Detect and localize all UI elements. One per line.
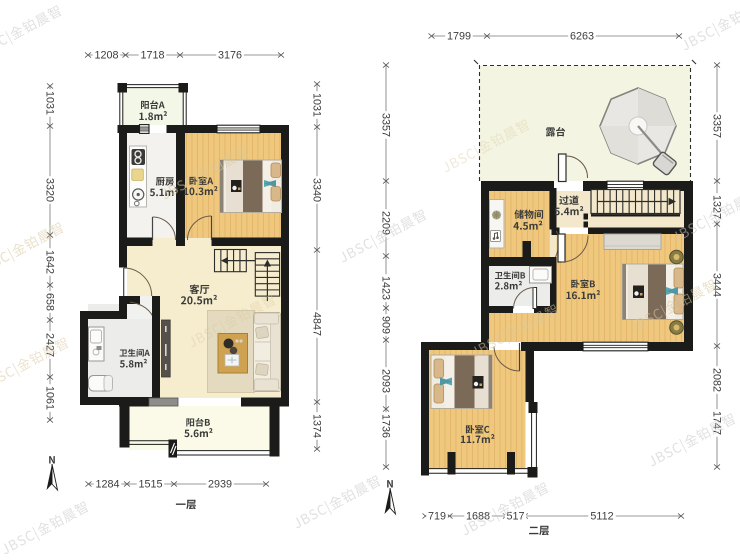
svg-text:3320: 3320	[43, 178, 55, 202]
svg-text:5112: 5112	[590, 511, 613, 523]
svg-text:1515: 1515	[138, 479, 162, 491]
svg-text:1799: 1799	[447, 31, 471, 43]
svg-text:3357: 3357	[379, 113, 391, 137]
svg-text:1736: 1736	[379, 414, 391, 438]
svg-text:3357: 3357	[710, 114, 722, 138]
svg-text:3340: 3340	[310, 178, 322, 202]
svg-text:719: 719	[428, 511, 446, 523]
svg-text:2093: 2093	[379, 369, 391, 393]
svg-text:1284: 1284	[95, 479, 119, 491]
svg-text:2939: 2939	[208, 479, 232, 491]
svg-text:1642: 1642	[43, 250, 55, 274]
svg-text:1718: 1718	[140, 50, 164, 62]
svg-text:2082: 2082	[710, 368, 722, 392]
svg-text:3444: 3444	[710, 273, 722, 297]
svg-text:1208: 1208	[94, 50, 118, 62]
svg-text:1061: 1061	[43, 386, 55, 410]
svg-text:658: 658	[43, 293, 55, 311]
svg-text:4847: 4847	[310, 312, 322, 336]
svg-text:1031: 1031	[310, 93, 322, 117]
svg-text:3176: 3176	[218, 50, 242, 62]
svg-text:1423: 1423	[379, 276, 391, 300]
svg-text:6263: 6263	[570, 31, 594, 43]
svg-text:1374: 1374	[310, 414, 322, 438]
svg-text:1031: 1031	[43, 91, 55, 115]
svg-text:909: 909	[379, 316, 391, 334]
